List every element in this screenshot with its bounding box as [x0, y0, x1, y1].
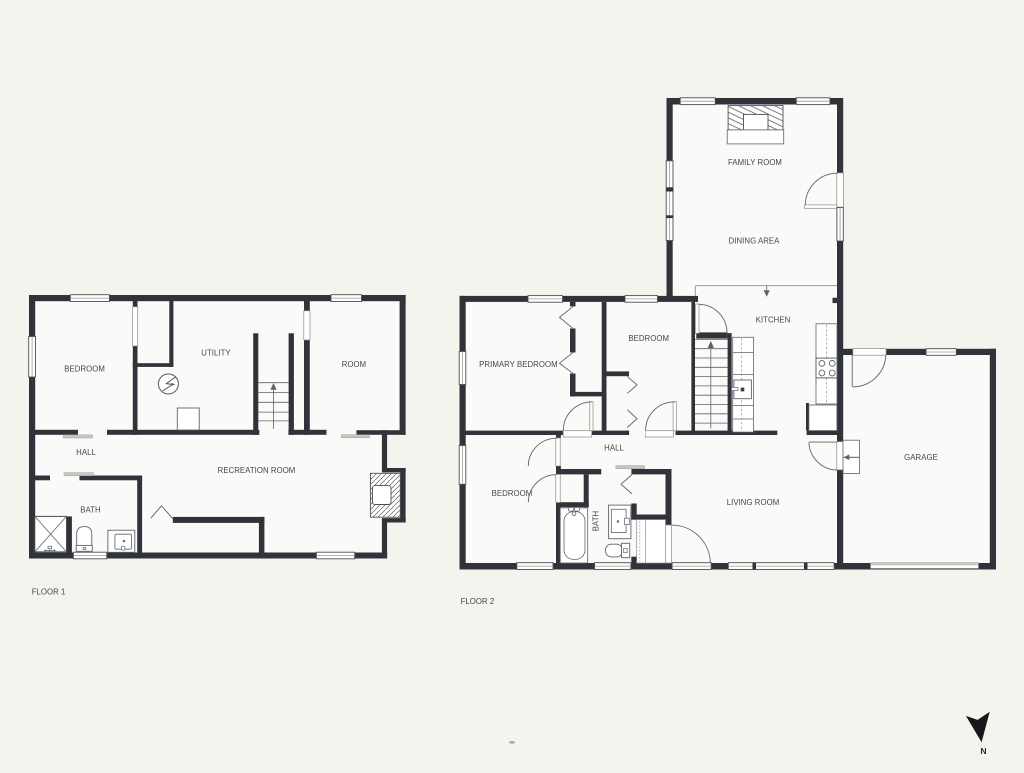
- svg-text:FLOOR 1: FLOOR 1: [32, 587, 66, 596]
- svg-text:PRIMARY BEDROOM: PRIMARY BEDROOM: [479, 360, 557, 369]
- svg-text:BATH: BATH: [592, 511, 601, 531]
- svg-text:GARAGE: GARAGE: [904, 453, 938, 462]
- svg-text:HALL: HALL: [76, 448, 96, 457]
- svg-text:HALL: HALL: [604, 444, 624, 453]
- svg-text:N: N: [980, 746, 986, 756]
- svg-text:LIVING ROOM: LIVING ROOM: [727, 498, 780, 507]
- svg-text:UTILITY: UTILITY: [201, 349, 231, 358]
- svg-text:BEDROOM: BEDROOM: [492, 489, 533, 498]
- svg-text:KITCHEN: KITCHEN: [756, 316, 791, 325]
- svg-text:FAMILY ROOM: FAMILY ROOM: [728, 158, 782, 167]
- svg-text:BATH: BATH: [80, 505, 100, 514]
- svg-text:RECREATION ROOM: RECREATION ROOM: [218, 466, 296, 475]
- svg-text:FLOOR 2: FLOOR 2: [461, 597, 495, 606]
- svg-text:BEDROOM: BEDROOM: [628, 334, 669, 343]
- svg-text:BEDROOM: BEDROOM: [64, 365, 105, 374]
- svg-text:DINING AREA: DINING AREA: [729, 237, 781, 246]
- svg-text:ROOM: ROOM: [342, 360, 366, 369]
